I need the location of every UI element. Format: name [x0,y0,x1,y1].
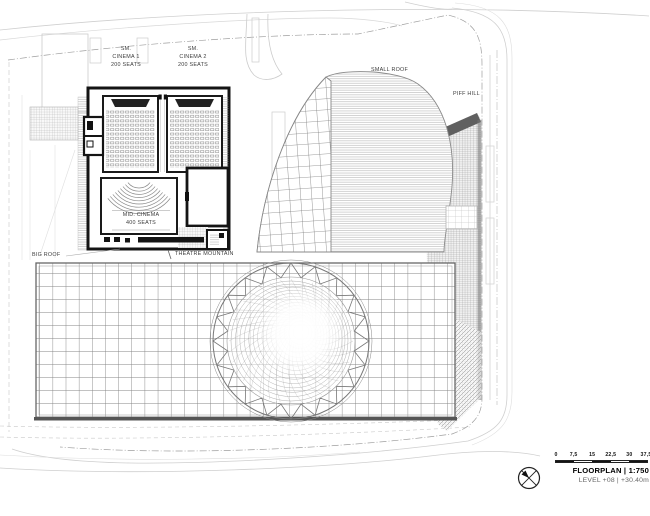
label-mid-cinema: MID. CINEMA 400 SEATS [123,212,160,228]
screen-2 [175,99,214,107]
big-roof [34,260,457,422]
scale-bar [555,460,648,463]
label-small-cinema-2: SM. CINEMA 2 200 SEATS [178,46,208,69]
scale-tick: 30 [626,452,632,458]
small-cinema-1 [103,96,158,172]
screen-1 [111,99,150,107]
small-cinema-2 [167,96,222,172]
legend: 0 7,5 15 22,5 30 37,5 FLOORPLAN | 1:750 … [514,452,650,512]
label-piff-hill: PIFF HILL [453,91,480,99]
label-theatre-mountain: THEATRE MOUNTAIN [175,251,234,259]
scale-tick: 37,5 [641,452,650,458]
scale-tick: 15 [589,452,595,458]
floorplan-drawing [0,0,650,516]
small-roof-grid-lobe [257,77,331,252]
hill-skylight [446,206,477,229]
big-roof-south-edge [34,417,457,421]
ramp-outline [246,14,282,79]
scale-tick: 0 [554,452,557,458]
label-small-cinema-1: SM. CINEMA 1 200 SEATS [111,46,141,69]
right-service-strip [486,50,497,405]
plan-title: FLOORPLAN | 1:750 [555,466,649,475]
label-small-roof: SMALL ROOF [371,67,408,75]
north-arrow-icon [516,465,542,491]
scale-block: 0 7,5 15 22,5 30 37,5 FLOORPLAN | 1:750 … [555,452,649,484]
stair-core [84,117,103,155]
plan-level: LEVEL +08 | +30.40m [555,477,649,484]
west-platform-hatch [30,107,78,140]
small-roof [257,72,453,252]
scale-tick: 7,5 [570,452,578,458]
floorplan-canvas: SM. CINEMA 1 200 SEATS SM. CINEMA 2 200 … [0,0,650,516]
east-hall [187,168,228,226]
label-big-roof: BIG ROOF [32,252,60,260]
scale-tick: 22,5 [605,452,616,458]
scale-tick-labels: 0 7,5 15 22,5 30 37,5 [555,452,649,460]
